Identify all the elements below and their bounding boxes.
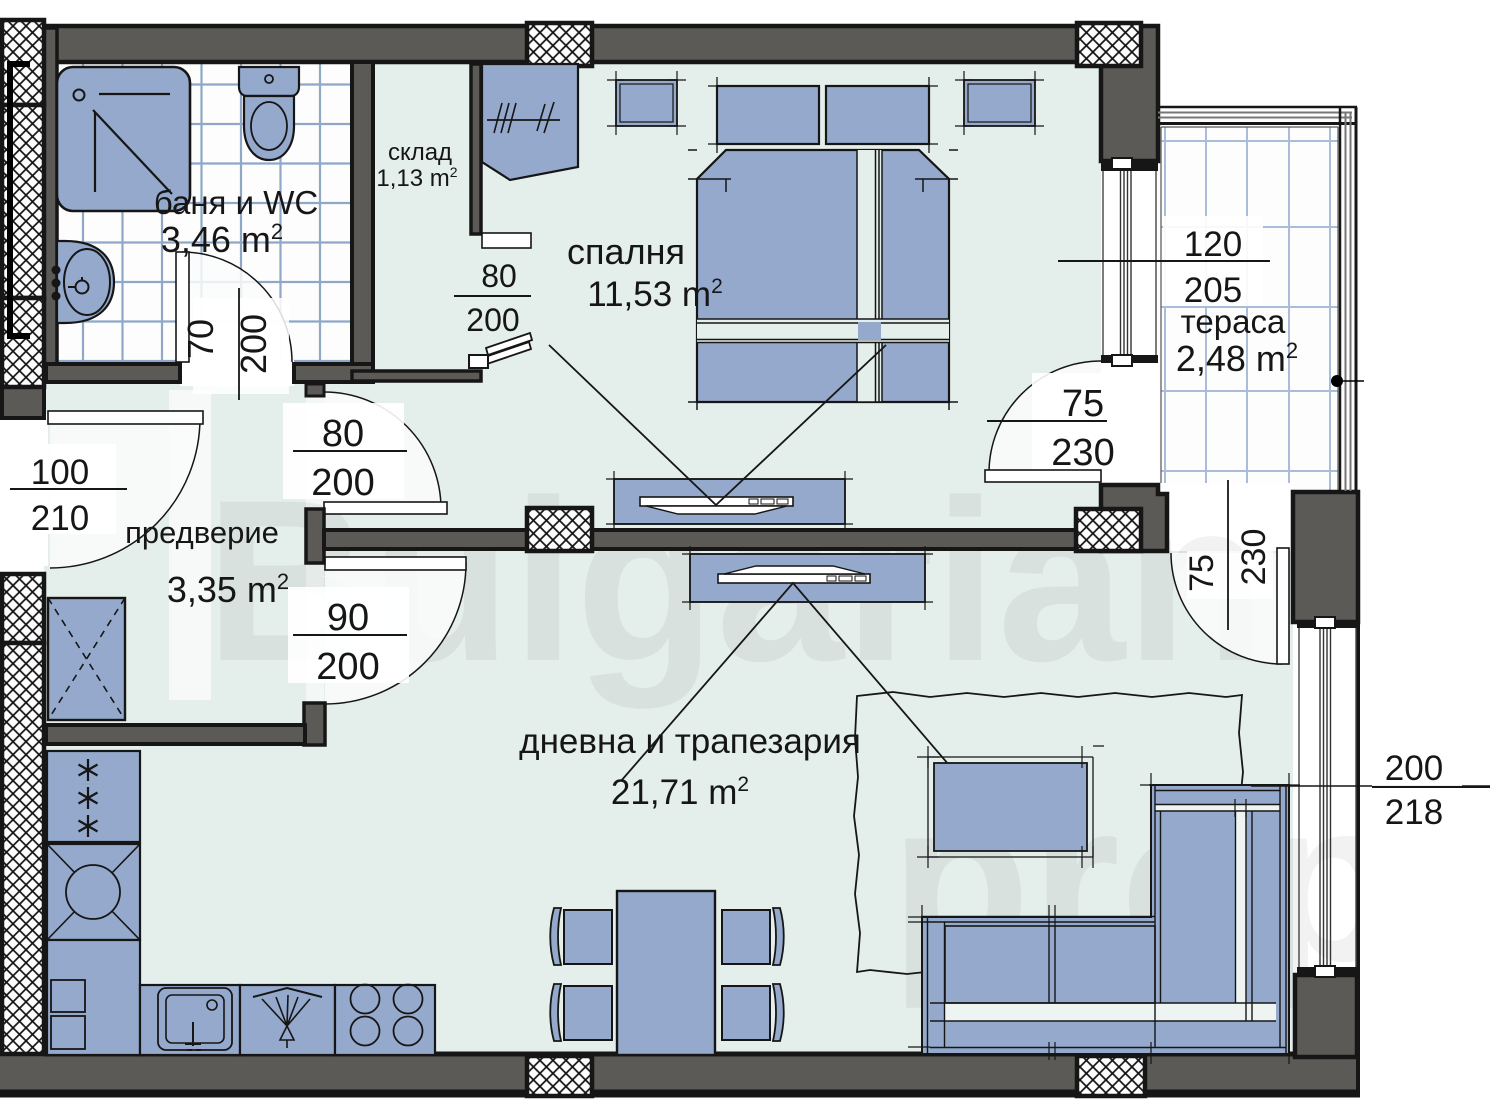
svg-text:100: 100 <box>31 453 89 492</box>
svg-text:218: 218 <box>1385 793 1443 832</box>
svg-text:3,35 m2: 3,35 m2 <box>167 569 289 610</box>
svg-text:1,13 m2: 1,13 m2 <box>376 164 457 192</box>
svg-text:200: 200 <box>316 646 379 688</box>
svg-text:75: 75 <box>1062 383 1104 425</box>
svg-text:200: 200 <box>233 314 274 374</box>
svg-text:120: 120 <box>1184 225 1242 264</box>
svg-text:200: 200 <box>466 302 519 338</box>
svg-text:90: 90 <box>327 597 369 639</box>
svg-text:80: 80 <box>481 258 517 294</box>
svg-text:205: 205 <box>1184 271 1242 310</box>
svg-text:70: 70 <box>180 319 221 359</box>
svg-text:80: 80 <box>322 413 364 455</box>
svg-text:230: 230 <box>1051 432 1114 474</box>
svg-text:баня и WC: баня и WC <box>154 184 318 221</box>
svg-text:200: 200 <box>1385 749 1443 788</box>
svg-text:11,53 m2: 11,53 m2 <box>587 275 723 314</box>
svg-text:склад: склад <box>388 139 452 166</box>
svg-text:230: 230 <box>1235 529 1273 586</box>
svg-text:21,71 m2: 21,71 m2 <box>611 773 749 812</box>
svg-text:2,48 m2: 2,48 m2 <box>1176 338 1298 379</box>
svg-text:дневна и трапезария: дневна и трапезария <box>519 722 861 761</box>
svg-text:200: 200 <box>311 462 374 504</box>
svg-text:спалня: спалня <box>567 231 685 272</box>
svg-text:3,46 m2: 3,46 m2 <box>161 219 283 260</box>
svg-text:75: 75 <box>1183 554 1221 592</box>
svg-text:210: 210 <box>31 499 89 538</box>
svg-text:предверие: предверие <box>125 515 279 550</box>
